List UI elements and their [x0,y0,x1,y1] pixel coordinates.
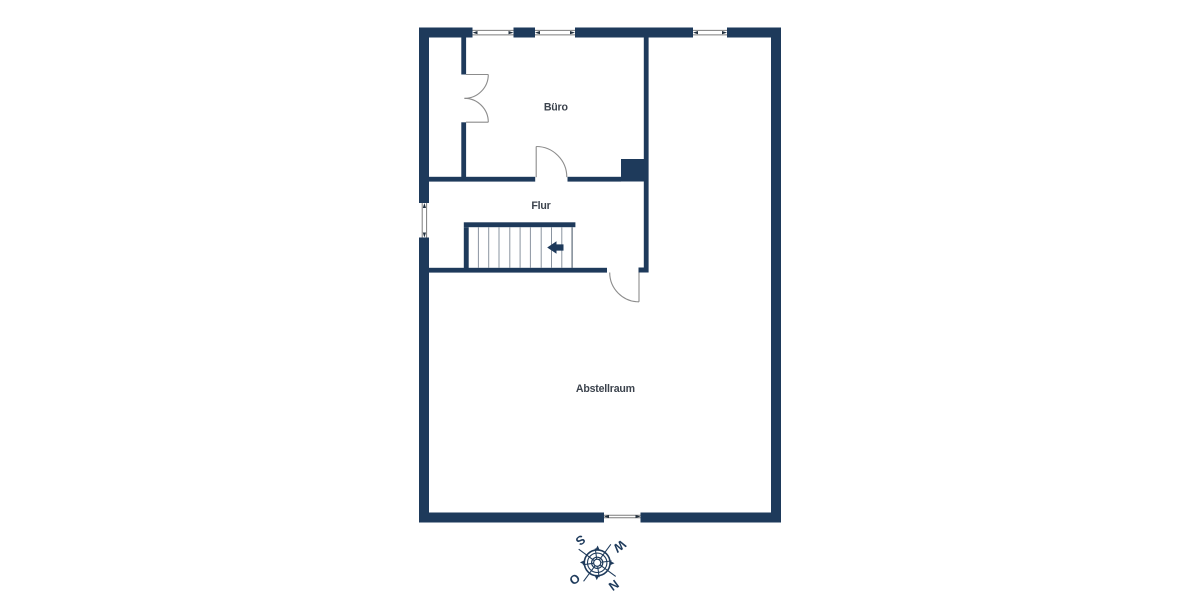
svg-text:Büro: Büro [544,102,569,114]
svg-text:Abstellraum: Abstellraum [576,383,635,395]
svg-text:Flur: Flur [531,200,550,212]
